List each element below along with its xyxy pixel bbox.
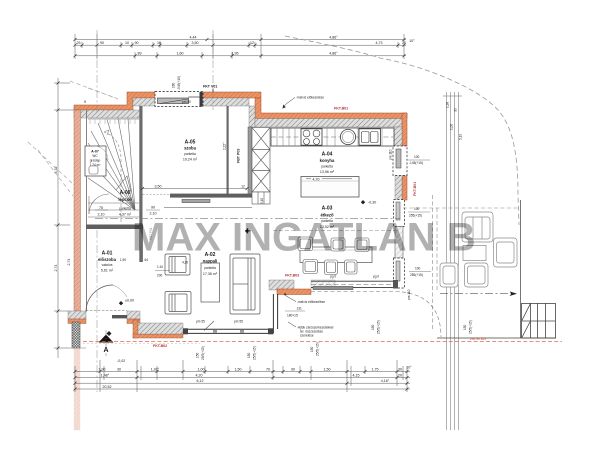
svg-text:-melvíz előkezelése: -melvíz előkezelése — [297, 300, 325, 304]
svg-text:12: 12 — [250, 41, 254, 45]
svg-text:4,86°: 4,86° — [329, 52, 338, 56]
svg-text:-545(+15): -545(+15) — [177, 76, 181, 90]
svg-text:vakolva: vakolva — [102, 263, 113, 267]
svg-text:150: 150 — [463, 324, 467, 330]
svg-text:5: 5 — [84, 100, 86, 104]
svg-text:12: 12 — [241, 184, 245, 188]
svg-text:1,50: 1,50 — [324, 367, 331, 371]
svg-text:FKT V01: FKT V01 — [203, 85, 217, 89]
svg-text:1,48°: 1,48° — [101, 373, 110, 377]
svg-text:5,19: 5,19 — [459, 134, 463, 140]
svg-text:1,98: 1,98 — [446, 102, 450, 108]
svg-text:90: 90 — [135, 41, 139, 45]
svg-text:4,73: 4,73 — [376, 41, 383, 45]
svg-text:FKT.B01: FKT.B01 — [413, 182, 417, 196]
svg-text:-0,02: -0,02 — [117, 359, 125, 363]
svg-text:2,74: 2,74 — [67, 259, 71, 266]
svg-text:pm 90: pm 90 — [182, 100, 191, 104]
svg-text:150: 150 — [247, 352, 251, 358]
svg-text:1,50: 1,50 — [235, 367, 242, 371]
svg-text:1,95: 1,95 — [232, 52, 239, 56]
svg-text:1,90: 1,90 — [120, 258, 126, 262]
svg-text:255(+15): 255(+15) — [410, 273, 423, 277]
svg-text:1:10: 1:10 — [157, 265, 163, 269]
svg-text:4,20: 4,20 — [182, 261, 188, 265]
svg-text:25/5(+15): 25/5(+15) — [377, 320, 381, 334]
svg-text:25/5(+15): 25/5(+15) — [201, 346, 205, 360]
svg-text:100: 100 — [414, 207, 420, 211]
svg-text:25: 25 — [77, 41, 81, 45]
svg-text:pm 110: pm 110 — [389, 149, 393, 160]
svg-text:1,90: 1,90 — [99, 367, 106, 371]
svg-text:A-03: A-03 — [322, 206, 333, 212]
svg-text:200: 200 — [157, 274, 163, 278]
svg-text:240,90 205: 240,90 205 — [470, 337, 486, 341]
svg-text:100: 100 — [414, 155, 420, 159]
svg-text:-145(+15): -145(+15) — [409, 161, 423, 165]
svg-text:szoba: szoba — [184, 146, 197, 151]
svg-text:90: 90 — [151, 206, 155, 210]
svg-text:1,00: 1,00 — [450, 124, 454, 130]
svg-text:A-07: A-07 — [91, 150, 99, 154]
svg-text:75: 75 — [99, 206, 103, 210]
svg-text:4,86°: 4,86° — [329, 36, 338, 40]
svg-text:pm 110: pm 110 — [407, 289, 411, 300]
svg-text:1,92°: 1,92° — [151, 367, 160, 371]
svg-text:20: 20 — [402, 41, 406, 45]
svg-text:25/5(+15): 25/5(+15) — [316, 342, 320, 356]
svg-text:6,12: 6,12 — [197, 379, 204, 383]
svg-text:parketta: parketta — [184, 152, 196, 156]
svg-text:10,24 m²: 10,24 m² — [183, 158, 198, 162]
svg-text:150: 150 — [310, 346, 314, 352]
svg-text:4,16°: 4,16° — [381, 379, 390, 383]
svg-text:10: 10 — [157, 41, 161, 45]
svg-text:100: 100 — [415, 267, 421, 271]
svg-text:pg 0: pg 0 — [373, 275, 379, 279]
svg-text:1,60: 1,60 — [177, 52, 184, 56]
svg-text:előszoba: előszoba — [98, 257, 117, 262]
svg-text:131: 131 — [297, 307, 303, 311]
svg-text:parketta: parketta — [321, 165, 333, 169]
svg-text:szerelése: szerelése — [300, 334, 314, 338]
svg-text:1,00: 1,00 — [198, 367, 205, 371]
svg-text:FKT.B01: FKT.B01 — [334, 107, 348, 111]
svg-text:lépcső: lépcső — [118, 197, 132, 202]
svg-text:konyha: konyha — [320, 158, 335, 163]
svg-text:3,50: 3,50 — [192, 41, 199, 45]
svg-text:3,50: 3,50 — [155, 184, 162, 188]
svg-text:89: 89 — [138, 52, 142, 56]
svg-text:pm 55: pm 55 — [234, 320, 243, 324]
svg-text:4,20: 4,20 — [196, 373, 203, 377]
svg-text:4,15: 4,15 — [353, 373, 360, 377]
svg-text:25/5(+15): 25/5(+15) — [253, 346, 257, 360]
svg-text:17,36 m²: 17,36 m² — [203, 272, 218, 276]
svg-text:1,75: 1,75 — [372, 367, 379, 371]
svg-text:90: 90 — [291, 367, 295, 371]
svg-text:-0,30: -0,30 — [368, 201, 376, 205]
svg-text:parketta: parketta — [204, 266, 216, 270]
svg-text:-melvíz előkezelése: -melvíz előkezelése — [296, 96, 324, 100]
svg-text:WC: WC — [92, 154, 98, 158]
svg-text:160: 160 — [172, 82, 176, 88]
svg-text:180×15: 180×15 — [287, 314, 298, 318]
svg-text:4,44: 4,44 — [190, 36, 197, 40]
svg-text:A-01: A-01 — [102, 251, 113, 257]
svg-text:FBT P03: FBT P03 — [237, 149, 241, 163]
svg-text:FKT.B02: FKT.B02 — [153, 344, 167, 348]
svg-text:25/5(+15): 25/5(+15) — [469, 320, 473, 334]
svg-text:parketta: parketta — [119, 207, 131, 211]
svg-text:13,96 m²: 13,96 m² — [320, 170, 335, 174]
svg-text:MAX INGATLAN B: MAX INGATLAN B — [132, 216, 476, 260]
svg-text:150: 150 — [196, 352, 200, 358]
svg-text:10°: 10° — [406, 365, 412, 369]
svg-text:30: 30 — [454, 108, 458, 112]
svg-text:20,52: 20,52 — [103, 385, 112, 389]
svg-text:FKT.B03: FKT.B03 — [285, 274, 299, 278]
svg-text:70: 70 — [266, 367, 270, 371]
svg-text:2,22°: 2,22° — [223, 142, 227, 150]
svg-text:5,61 m²: 5,61 m² — [101, 269, 114, 273]
svg-text:±0,00: ±0,00 — [125, 299, 134, 303]
svg-text:90: 90 — [100, 41, 104, 45]
svg-text:30: 30 — [398, 367, 402, 371]
svg-text:greslap: greslap — [90, 159, 101, 163]
svg-text:10: 10 — [125, 41, 129, 45]
svg-text:4,37 m²: 4,37 m² — [119, 213, 132, 217]
svg-text:30: 30 — [117, 367, 121, 371]
svg-text:A-06: A-06 — [120, 190, 131, 196]
svg-text:5,10: 5,10 — [260, 198, 264, 204]
svg-text:10°: 10° — [409, 39, 415, 43]
svg-text:150: 150 — [371, 324, 375, 330]
svg-text:20: 20 — [398, 373, 402, 377]
svg-text:pm 55: pm 55 — [196, 320, 205, 324]
svg-text:A-04: A-04 — [322, 152, 333, 158]
svg-text:pg 0: pg 0 — [330, 275, 336, 279]
svg-text:4,70: 4,70 — [313, 177, 320, 181]
svg-text:2,74: 2,74 — [54, 265, 58, 272]
svg-text:2,10: 2,10 — [98, 213, 105, 217]
